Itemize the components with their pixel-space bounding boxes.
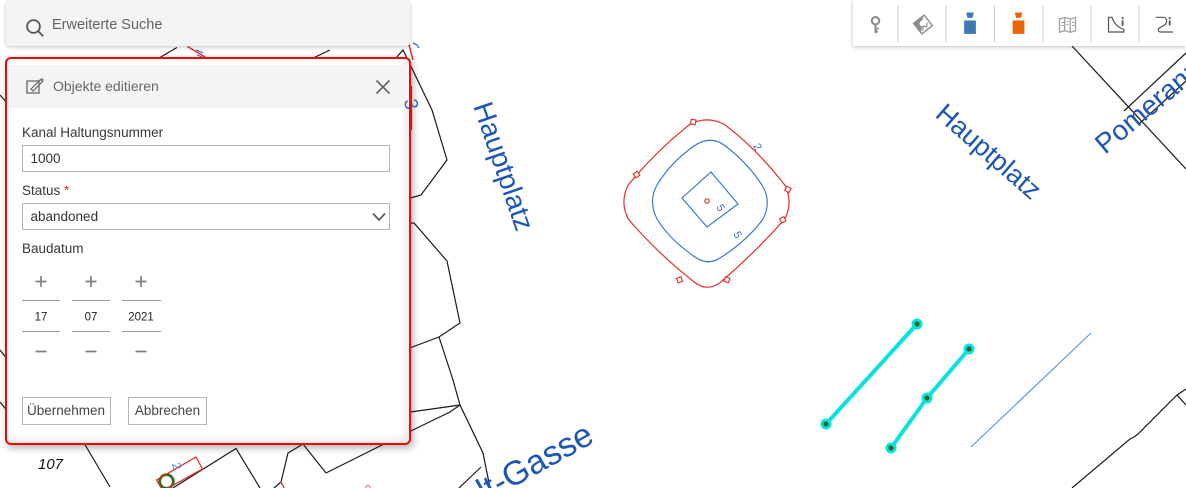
svg-text:2: 2: [750, 142, 763, 153]
svg-text:Hauptplatz: Hauptplatz: [467, 98, 540, 235]
svg-text:2: 2: [169, 461, 184, 471]
svg-text:5: 5: [730, 230, 743, 241]
svg-text:5: 5: [713, 203, 726, 214]
svg-text:107: 107: [38, 456, 64, 473]
svg-text:2021: 2021: [128, 312, 154, 324]
svg-text:welt-Gasse: welt-Gasse: [432, 415, 600, 488]
svg-text:17: 17: [35, 312, 48, 324]
svg-text:07: 07: [85, 312, 98, 324]
svg-text:Hauptplatz: Hauptplatz: [930, 98, 1047, 205]
